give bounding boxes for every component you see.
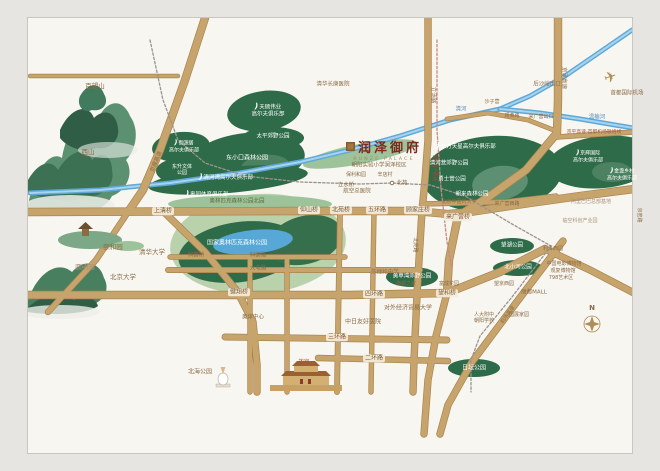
map-label: 仰山桥 (298, 206, 320, 214)
map-label: )御源居 高尔夫俱乐部 (169, 139, 199, 154)
map-label: 利泽西园 (543, 246, 563, 252)
compass-north-label: N (589, 304, 595, 312)
map-label: 地铁17号线 (431, 155, 437, 181)
map-label: 富成花园 (439, 281, 459, 287)
map-label: 航空总医院 (343, 189, 371, 196)
map-label: 温榆河 (589, 115, 606, 122)
map-label: 奥体中心 (242, 315, 264, 322)
map-label: 阿里巴巴总部基地 (571, 199, 611, 205)
map-label: 四环路 (363, 290, 385, 298)
map-label: 颐和园 (103, 243, 123, 251)
map-label: 北海公园 (188, 368, 212, 376)
map-label: 临空科创产业园 (562, 218, 597, 224)
project-title: 润泽御府 (358, 137, 422, 156)
map-label: 三环路 (326, 333, 348, 341)
map-label: 沙子营 (484, 99, 499, 105)
map-label: 陈经纶中学 (371, 270, 399, 277)
golfer-icon: ) (609, 166, 614, 175)
map-label: )京辉国际 高尔夫俱乐部 (573, 149, 603, 164)
map-label: 东小口森林公园 (226, 154, 268, 162)
map-label: 来广营出口 (528, 114, 553, 120)
map-label: 国展家园 (509, 312, 529, 318)
map-label: 首都国际机场 (611, 91, 644, 98)
map-label: 黄草湾郊野公园 (393, 274, 432, 281)
map-label: 清华大学 (139, 248, 165, 256)
map-label: 清华长庚医院 (316, 82, 349, 89)
map-label: 京藏高速 (150, 151, 165, 174)
map-label: 旗舰之家 (396, 281, 416, 287)
map-label: 京密路 (636, 207, 642, 222)
map-label: 望和桥 (436, 289, 458, 297)
map-label: 北苑桥 (330, 206, 352, 214)
map-label: 望湖公园 (501, 243, 523, 250)
map-label: 北苑 (396, 181, 407, 188)
map-label: 中日友好医院 (345, 318, 381, 326)
map-label: 朝阳实验小学润泽校区 (351, 163, 406, 170)
map-label: 百望山 (85, 82, 105, 90)
map-label: )金盏乡村 高尔夫俱乐部 (607, 167, 637, 182)
golfer-icon: ) (435, 141, 441, 151)
map-label: 北小河公园 (504, 265, 532, 272)
map-label: 五环路 (366, 206, 388, 214)
map-label: 科荟路 (250, 253, 267, 260)
map-label: 辛店村 (377, 172, 392, 178)
golfer-icon: ) (198, 172, 204, 182)
map-label: 日坛公园 (462, 364, 486, 372)
map-label: 健翔桥 (228, 288, 250, 296)
map-label: 798艺术区 (549, 275, 574, 281)
map-label: 人大附中 朝阳学校 (474, 312, 494, 325)
map-label: 清河营郊野公园 (430, 161, 469, 168)
map-label: 保利和园 (346, 172, 366, 178)
map-label: 朝来森林公园 (455, 192, 488, 199)
map-label: 来广营西路 (494, 201, 519, 207)
logo-seal-icon (346, 142, 355, 151)
map-label: 后沙峪出口 (533, 82, 561, 89)
golfer-icon: ) (184, 189, 190, 199)
map-label: 立汤路 (429, 87, 436, 104)
map-label: )东方天星高尔夫俱乐部 (436, 141, 496, 151)
golfer-icon: ) (575, 148, 580, 157)
map-label: 国家奥林匹克森林公园 (207, 239, 267, 247)
map-label: 东升文体 公园 (172, 164, 192, 177)
map-label: 立水桥 (338, 183, 355, 190)
map-label: 顾家庄桥 (404, 206, 432, 214)
map-label: 二环路 (363, 354, 385, 362)
map-label: )奥园体育俱乐部 (185, 189, 228, 199)
map-label: 上清桥 (152, 207, 174, 215)
map-label: 观复博物馆 (550, 268, 575, 274)
project-logo: 润泽御府 RUNZE PALACE (346, 137, 422, 162)
map-label: 丽都MALL (521, 290, 547, 297)
map-label: 京平高速-首都机场联络线 (567, 130, 622, 136)
map-label: 顺黄路 (504, 113, 519, 119)
map-label: 勇士营公园 (438, 177, 466, 184)
golfer-icon: ) (254, 101, 260, 111)
project-subtitle: RUNZE PALACE (346, 157, 422, 162)
map-label: 京承高速 (560, 67, 567, 89)
map-label: 来广营桥 (444, 213, 472, 221)
map-label: 大屯路 (250, 266, 267, 273)
map-labels-layer: 百望山西山颐和园圆明园北京大学清华大学清华长庚医院科荟桥科荟路大屯路上清桥健翔桥… (0, 0, 660, 471)
map-label: 奥林匹克森林公园北园 (209, 199, 264, 206)
map-label: 太平郊野公园 (256, 134, 289, 141)
map-page: 百望山西山颐和园圆明园北京大学清华大学清华长庚医院科荟桥科荟路大屯路上清桥健翔桥… (0, 0, 660, 471)
map-label: 圆明园 (75, 263, 95, 271)
golfer-icon: ) (173, 138, 178, 147)
map-label: 望京西园 (494, 281, 514, 287)
map-label: 清河 (455, 107, 466, 114)
map-label: 机场高速 (500, 305, 517, 325)
map-label: )天硕伟业 高尔夫俱乐部 (251, 102, 284, 119)
map-label: 科荟桥 (188, 253, 205, 260)
map-label: 北苑路 (412, 237, 418, 252)
map-label: )清河湾高尔夫俱乐部 (199, 172, 253, 182)
map-label: 中国电影博物馆 (546, 261, 581, 267)
map-label: 西山 (82, 148, 95, 156)
map-label: 北京中医药大学 (441, 199, 476, 205)
map-label: 北京大学 (110, 273, 136, 281)
map-label: 故宫 (298, 360, 309, 367)
map-label: 对外经济贸易大学 (384, 304, 432, 312)
